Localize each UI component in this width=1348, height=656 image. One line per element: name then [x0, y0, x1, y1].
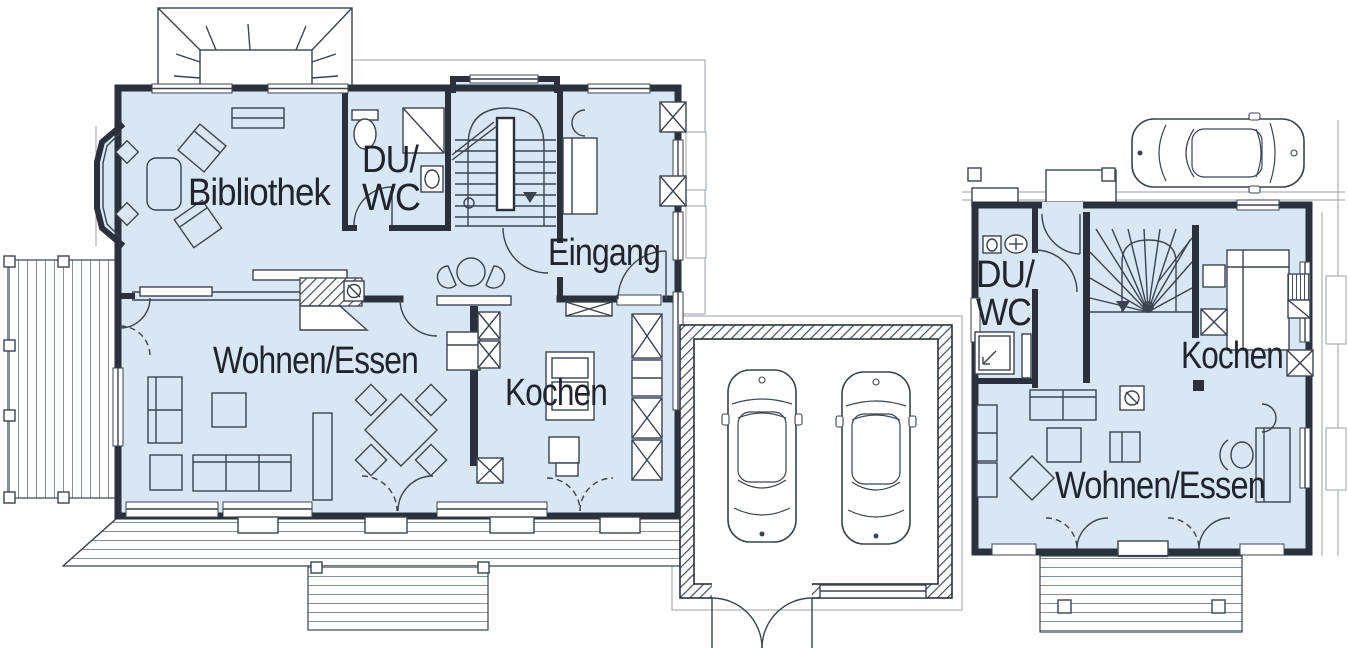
garage [680, 325, 952, 648]
car-icon [836, 372, 916, 544]
small-house: DU/ WC Kochen Wohnen/Essen [968, 113, 1313, 556]
label-du-main: DU/ [362, 139, 419, 181]
label-wohnen-main: Wohnen/Essen [213, 340, 418, 382]
label-wc-main: WC [362, 177, 420, 219]
label-bibliothek: Bibliothek [188, 172, 332, 214]
car-icon [1132, 113, 1304, 193]
label-du-small: DU/ [976, 254, 1035, 296]
floor-plan-drawing: Bibliothek DU/ WC Eingang Wohnen/Essen K… [0, 0, 1348, 656]
floor-plan-page: Bibliothek DU/ WC Eingang Wohnen/Essen K… [0, 0, 1348, 656]
shower-small [975, 332, 1014, 374]
car-icon [722, 370, 802, 542]
deck-small-house [1040, 556, 1242, 632]
fridge-icon [1288, 274, 1310, 318]
label-kochen-small: Kochen [1181, 335, 1283, 377]
label-kochen-main: Kochen [505, 372, 607, 414]
deck-left [8, 260, 117, 498]
steps-main [308, 566, 488, 630]
stove-icon [1120, 386, 1144, 410]
fireplace [300, 278, 367, 330]
label-wc-small: WC [976, 292, 1031, 334]
entry-mat [566, 302, 612, 316]
main-house: Bibliothek DU/ WC Eingang Wohnen/Essen K… [97, 75, 686, 533]
label-wohnen-small: Wohnen/Essen [1055, 465, 1265, 507]
label-eingang: Eingang [548, 232, 660, 274]
roof-projection [158, 8, 352, 88]
dining-table [355, 384, 446, 475]
